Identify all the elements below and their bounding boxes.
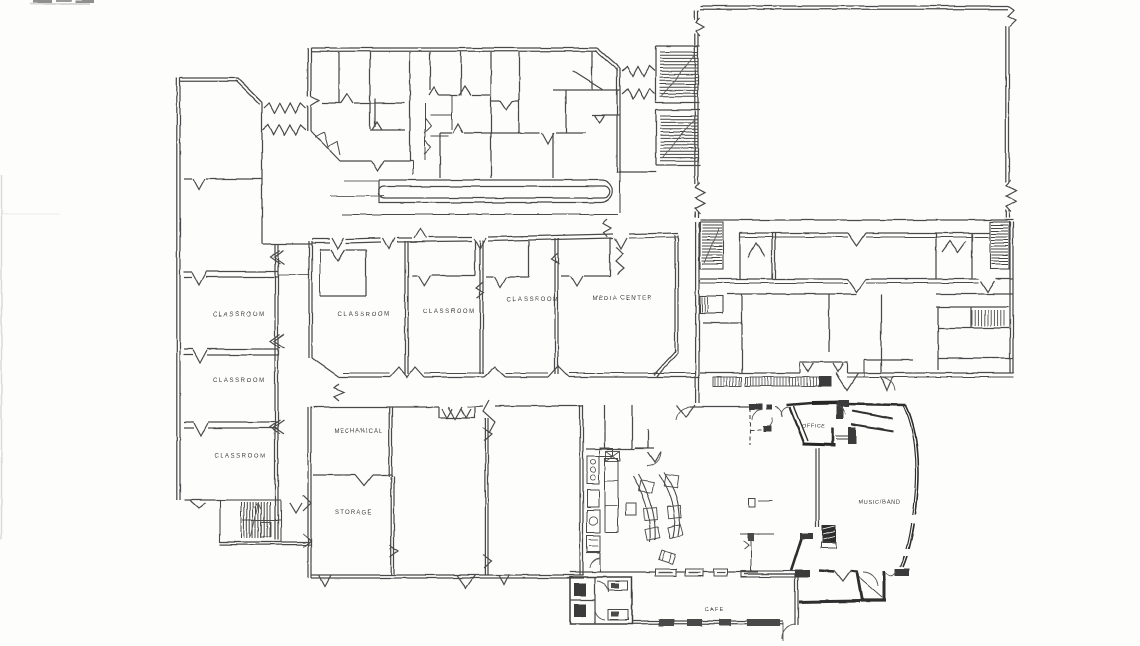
svg-text:OFFICE: OFFICE xyxy=(802,424,826,430)
svg-text:CLASSROOM: CLASSROOM xyxy=(214,454,267,460)
svg-text:MECHANICAL: MECHANICAL xyxy=(334,429,383,435)
svg-text:CLASSROOM: CLASSROOM xyxy=(507,297,560,303)
svg-text:CLASSROOM: CLASSROOM xyxy=(338,312,391,318)
svg-text:CLASSROOM: CLASSROOM xyxy=(423,309,476,315)
svg-text:CAFE: CAFE xyxy=(705,607,724,613)
svg-text:STORAGE: STORAGE xyxy=(335,510,373,516)
svg-text:CLASSROOM: CLASSROOM xyxy=(213,312,266,318)
svg-text:MEDIA CENTER: MEDIA CENTER xyxy=(593,296,652,302)
svg-text:CLASSROOM: CLASSROOM xyxy=(213,378,266,384)
svg-text:MUSIC/BAND: MUSIC/BAND xyxy=(859,500,901,506)
